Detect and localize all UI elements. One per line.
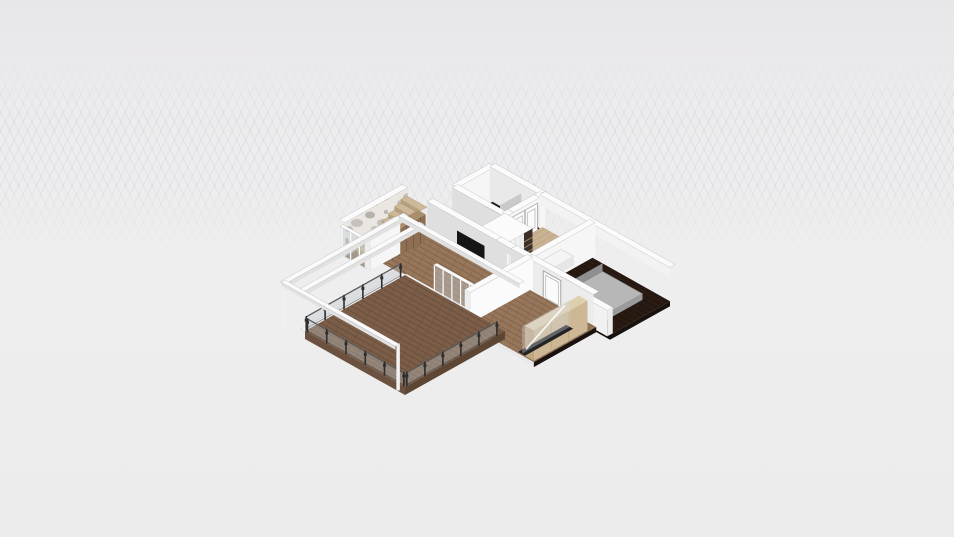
3d-viewport[interactable] xyxy=(0,0,954,537)
face xyxy=(607,307,613,336)
floorplan-3d-render xyxy=(0,0,954,537)
